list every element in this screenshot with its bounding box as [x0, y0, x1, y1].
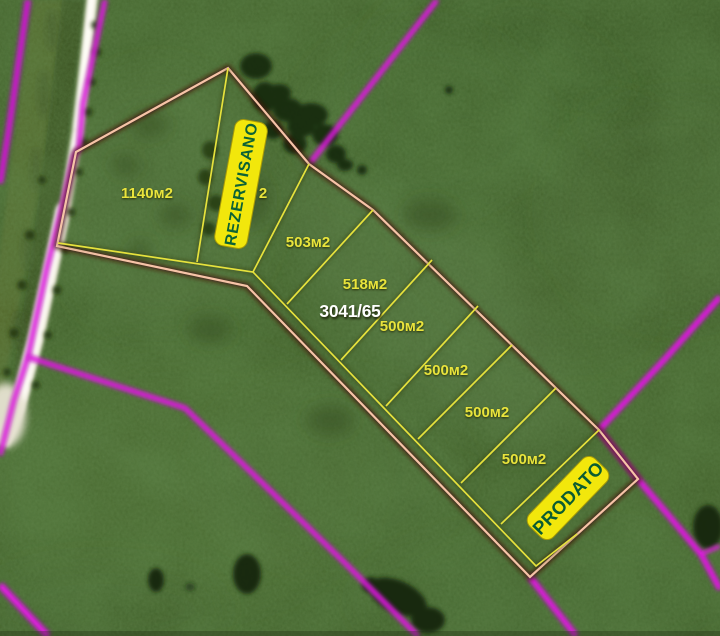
svg-text:2: 2 — [259, 185, 267, 202]
svg-text:500м2: 500м2 — [502, 451, 546, 468]
svg-text:500м2: 500м2 — [465, 404, 509, 421]
svg-text:500м2: 500м2 — [380, 318, 424, 335]
svg-text:1140м2: 1140м2 — [121, 185, 173, 202]
svg-text:500м2: 500м2 — [424, 362, 468, 379]
svg-text:518м2: 518м2 — [343, 276, 387, 293]
svg-text:3041/65: 3041/65 — [319, 301, 381, 321]
svg-text:503м2: 503м2 — [286, 234, 330, 251]
